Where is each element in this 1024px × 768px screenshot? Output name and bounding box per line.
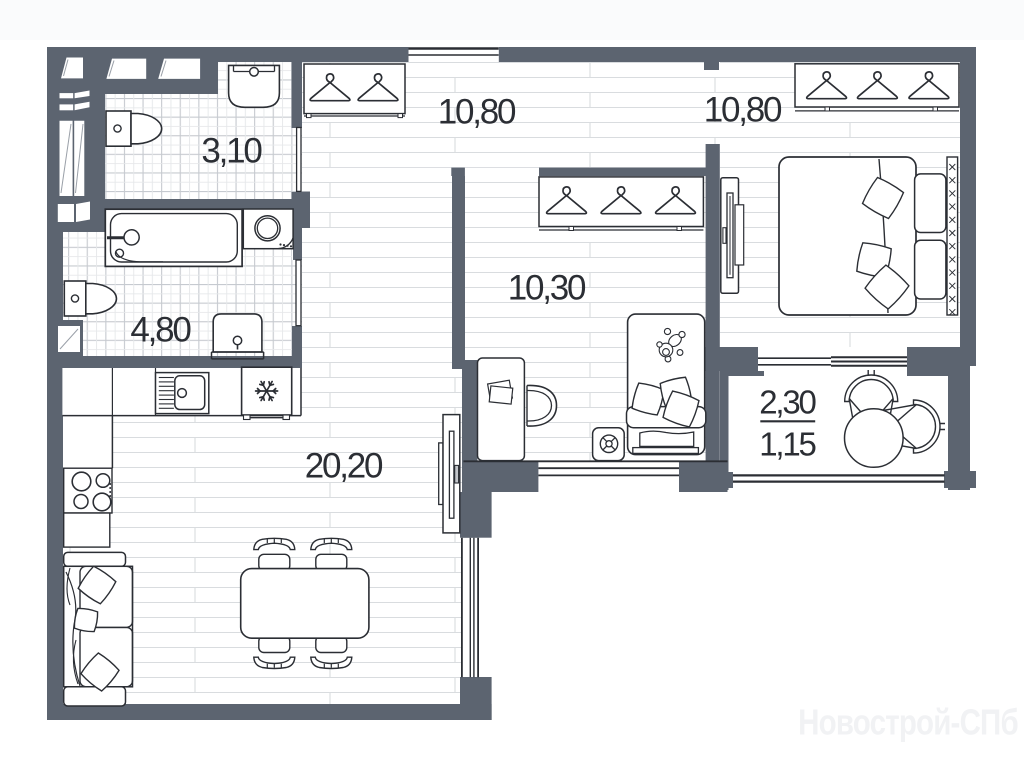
svg-text:Новострой-СПб: Новострой-СПб <box>798 702 1018 742</box>
svg-text:4,80: 4,80 <box>130 311 191 350</box>
svg-text:10,80: 10,80 <box>704 91 782 130</box>
svg-text:20,20: 20,20 <box>305 447 383 486</box>
svg-text:3,10: 3,10 <box>201 132 262 171</box>
svg-text:10,30: 10,30 <box>508 269 586 308</box>
svg-text:10,80: 10,80 <box>438 93 516 132</box>
svg-text:2,30: 2,30 <box>759 384 816 421</box>
svg-text:1,15: 1,15 <box>759 426 815 463</box>
